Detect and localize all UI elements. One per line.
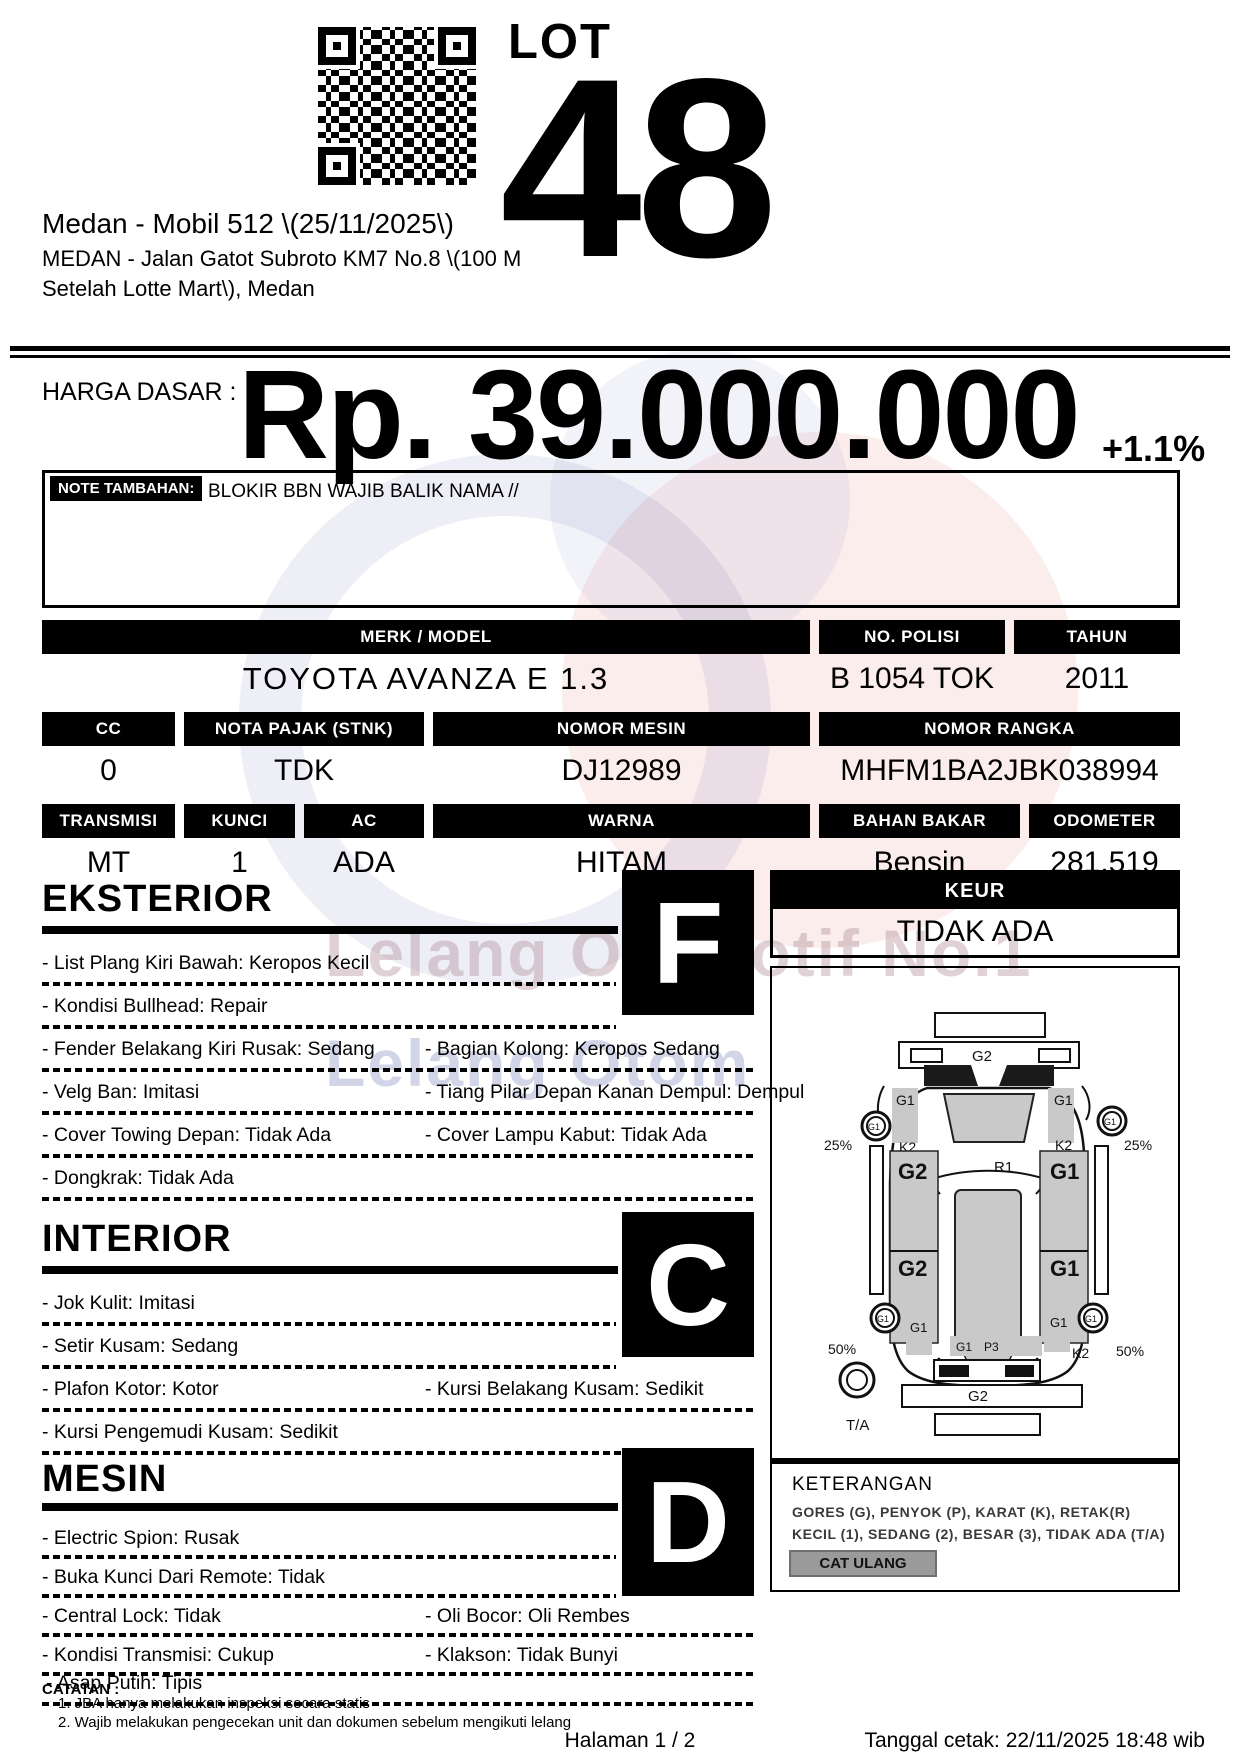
interior-item: - Setir Kusam: Sedang xyxy=(42,1335,238,1358)
keterangan-line2: KECIL (1), SEDANG (2), BESAR (3), TIDAK … xyxy=(792,1526,1165,1542)
label-left-fender: G1 xyxy=(896,1092,915,1108)
header-nomor-rangka: NOMOR RANGKA xyxy=(819,712,1180,746)
dotted-divider xyxy=(42,1594,616,1598)
auction-address-line1: MEDAN - Jalan Gatot Subroto KM7 No.8 \(1… xyxy=(42,246,521,272)
keur-box: KEUR TIDAK ADA xyxy=(770,870,1180,958)
eksterior-item: - Cover Towing Depan: Tidak Ada xyxy=(42,1124,331,1147)
dotted-divider xyxy=(42,1322,616,1326)
value-nota-pajak: TDK xyxy=(184,748,424,794)
dotted-divider xyxy=(42,1408,755,1412)
keur-label: KEUR xyxy=(773,873,1177,909)
header-merk-model: MERK / MODEL xyxy=(42,620,810,654)
mesin-item: - Oli Bocor: Oli Rembes xyxy=(425,1605,630,1628)
header-ac: AC xyxy=(304,804,424,838)
mesin-item: - Electric Spion: Rusak xyxy=(42,1527,239,1550)
section-title-interior: INTERIOR xyxy=(42,1218,232,1261)
label-tailgate-1: G1 xyxy=(956,1340,972,1354)
note-label: NOTE TAMBAHAN: xyxy=(50,476,202,501)
header-cc: CC xyxy=(42,712,175,746)
header-tahun: TAHUN xyxy=(1014,620,1180,654)
label-rear-right-tire: 50% xyxy=(1116,1343,1144,1359)
label-front-left-tire: 25% xyxy=(824,1137,852,1153)
lot-number: 48 xyxy=(500,50,772,287)
eksterior-item: - Dongkrak: Tidak Ada xyxy=(42,1167,234,1190)
damage-diagram: G2 G1 G1 G1 xyxy=(770,966,1180,1460)
label-front-right-door: G1 xyxy=(1050,1159,1079,1184)
value-merk-model: TOYOTA AVANZA E 1.3 xyxy=(42,656,810,702)
label-roof: R1 xyxy=(994,1159,1013,1176)
dotted-divider xyxy=(42,1154,755,1158)
label-rear-right-door: G1 xyxy=(1050,1256,1079,1281)
value-nomor-rangka: MHFM1BA2JBK038994 xyxy=(819,748,1180,794)
label-rear-left-door: G2 xyxy=(898,1256,927,1281)
section-title-mesin: MESIN xyxy=(42,1458,167,1501)
value-nomor-mesin: DJ12989 xyxy=(433,748,810,794)
dotted-divider xyxy=(42,1365,616,1369)
label-rear-right-wheel: G1 xyxy=(1085,1314,1097,1324)
mesin-item: - Klakson: Tidak Bunyi xyxy=(425,1644,618,1667)
eksterior-item: - List Plang Kiri Bawah: Keropos Kecil xyxy=(42,952,369,975)
keterangan-box: KETERANGAN GORES (G), PENYOK (P), KARAT … xyxy=(770,1460,1180,1592)
keterangan-title: KETERANGAN xyxy=(792,1474,933,1496)
note-content: BLOKIR BBN WAJIB BALIK NAMA // xyxy=(208,481,519,503)
grade-mesin: D xyxy=(622,1448,754,1596)
interior-item: - Kursi Belakang Kusam: Sedikit xyxy=(425,1378,704,1401)
value-no-polisi: B 1054 TOK xyxy=(819,656,1005,702)
grade-interior: C xyxy=(622,1212,754,1357)
section-underline xyxy=(42,1266,618,1274)
value-ac: ADA xyxy=(304,840,424,886)
label-rear-left-wheel: G1 xyxy=(877,1314,889,1324)
qr-finder-icon xyxy=(318,27,356,65)
value-tahun: 2011 xyxy=(1014,656,1180,702)
eksterior-item: - Velg Ban: Imitasi xyxy=(42,1081,199,1104)
dotted-divider xyxy=(42,1068,755,1072)
eksterior-item: - Bagian Kolong: Keropos Sedang xyxy=(425,1038,720,1061)
header-nomor-mesin: NOMOR MESIN xyxy=(433,712,810,746)
dotted-divider xyxy=(42,1197,755,1201)
auction-title: Medan - Mobil 512 \(25/11/2025\) xyxy=(42,208,454,240)
dotted-divider xyxy=(42,1111,755,1115)
interior-item: - Plafon Kotor: Kotor xyxy=(42,1378,219,1401)
dotted-divider xyxy=(42,1555,616,1559)
interior-item: - Jok Kulit: Imitasi xyxy=(42,1292,195,1315)
label-rear-right-quarter: G1 xyxy=(1050,1315,1067,1330)
label-rear-left-quarter: G1 xyxy=(910,1320,927,1335)
label-front-right-tire: 25% xyxy=(1124,1137,1152,1153)
interior-item: - Kursi Pengemudi Kusam: Sedikit xyxy=(42,1421,338,1444)
qr-finder-icon xyxy=(318,147,356,185)
qr-code xyxy=(318,27,476,185)
eksterior-item: - Cover Lampu Kabut: Tidak Ada xyxy=(425,1124,707,1147)
header-warna: WARNA xyxy=(433,804,810,838)
label-rear-bumper: G2 xyxy=(968,1388,988,1405)
header-transmisi: TRANSMISI xyxy=(42,804,175,838)
grade-eksterior: F xyxy=(622,870,754,1015)
eksterior-item: - Kondisi Bullhead: Repair xyxy=(42,995,267,1018)
section-underline xyxy=(42,926,618,934)
dotted-divider xyxy=(42,1633,755,1637)
header-odometer: ODOMETER xyxy=(1029,804,1180,838)
label-rear-left-tire: 50% xyxy=(828,1341,856,1357)
header-kunci: KUNCI xyxy=(184,804,295,838)
base-price-label: HARGA DASAR : xyxy=(42,378,237,407)
dotted-divider xyxy=(42,1702,755,1706)
header-bahan-bakar: BAHAN BAKAR xyxy=(819,804,1020,838)
label-left-mirror: G1 xyxy=(868,1122,880,1132)
keur-value: TIDAK ADA xyxy=(773,909,1177,955)
auction-address-line2: Setelah Lotte Mart\), Medan xyxy=(42,276,315,302)
catatan-line2: 2. Wajib melakukan pengecekan unit dan d… xyxy=(58,1714,571,1731)
page-number: Halaman 1 / 2 xyxy=(520,1729,740,1753)
qr-finder-icon xyxy=(438,27,476,65)
auction-lot-sheet: Lelang Otomotif No.1 Lelang Otomotif LOT… xyxy=(0,0,1240,1754)
diagram-top-rect xyxy=(935,1013,1045,1037)
section-title-eksterior: EKSTERIOR xyxy=(42,878,273,921)
mesin-item: - Buka Kunci Dari Remote: Tidak xyxy=(42,1566,325,1589)
section-underline xyxy=(42,1503,618,1511)
eksterior-item: - Tiang Pilar Depan Kanan Dempul: Dempul xyxy=(425,1081,804,1104)
mesin-item-asap-putih: - Asap Putih: Tipis xyxy=(46,1672,202,1695)
keterangan-line1: GORES (G), PENYOK (P), KARAT (K), RETAK(… xyxy=(792,1504,1131,1520)
label-tailgate-2: P3 xyxy=(984,1340,999,1354)
label-spare-tire: T/A xyxy=(846,1417,869,1434)
label-right-mirror: G1 xyxy=(1104,1117,1116,1127)
eksterior-item: - Fender Belakang Kiri Rusak: Sedang xyxy=(42,1038,375,1061)
header-no-polisi: NO. POLISI xyxy=(819,620,1005,654)
dotted-divider xyxy=(42,982,616,986)
label-right-fender: G1 xyxy=(1054,1092,1073,1108)
label-front-bumper: G2 xyxy=(972,1048,992,1065)
base-price-amount: Rp. 39.000.000 xyxy=(238,352,1079,478)
header-nota-pajak: NOTA PAJAK (STNK) xyxy=(184,712,424,746)
print-timestamp: Tanggal cetak: 22/11/2025 18:48 wib xyxy=(864,1729,1205,1753)
label-rear-right-corner: K2 xyxy=(1072,1345,1089,1361)
price-change-badge: +1.1% xyxy=(1102,428,1205,470)
cat-ulang-badge: CAT ULANG xyxy=(789,1550,937,1577)
mesin-item: - Central Lock: Tidak xyxy=(42,1605,221,1628)
label-front-left-door: G2 xyxy=(898,1159,927,1184)
value-cc: 0 xyxy=(42,748,175,794)
mesin-item: - Kondisi Transmisi: Cukup xyxy=(42,1644,274,1667)
dotted-divider xyxy=(42,1025,616,1029)
